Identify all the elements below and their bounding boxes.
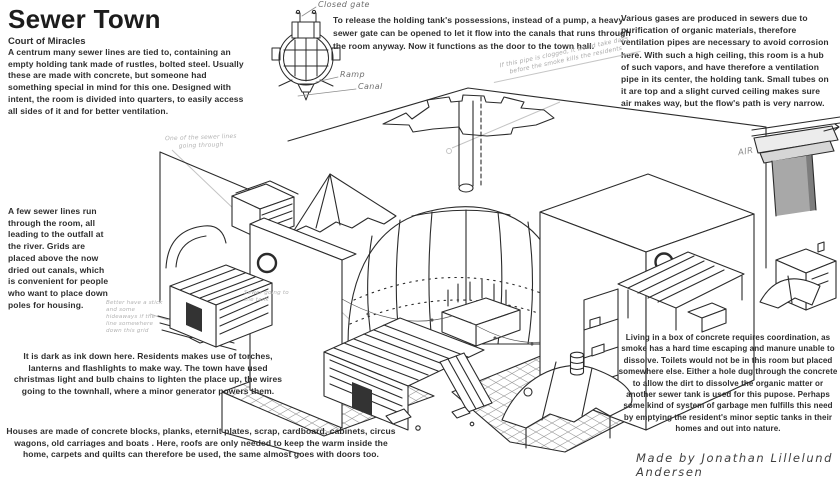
closed-gate-label: Closed gate (318, 0, 370, 9)
page-title: Sewer Town (8, 4, 161, 35)
gases-paragraph: Various gases are produced in sewers due… (621, 12, 833, 110)
sewer-lines-paragraph: A few sewer lines run through the room, … (8, 206, 114, 311)
concept-art-page: Sewer Town Court of Miracles A centrum m… (0, 0, 840, 479)
pillar-drawing (752, 117, 840, 216)
canal-label: Canal (358, 82, 383, 91)
sewer-line-note: One of the sewer lines going through (158, 133, 244, 151)
grid-note: Better have a stick and some hideaways i… (106, 300, 168, 335)
houses-paragraph: Houses are made of concrete blocks, plan… (2, 426, 400, 461)
ramp-label: Ramp (340, 70, 365, 79)
artist-signature: Made by Jonathan Lillelund Andersen (636, 451, 840, 479)
dark-paragraph: It is dark as ink down here. Residents m… (12, 351, 284, 398)
tank-note: Sewer going to the tank (244, 290, 290, 304)
intro-paragraph: A centrum many sewer lines are tied to, … (8, 47, 250, 117)
living-paragraph: Living in a box of concrete requires coo… (618, 332, 838, 435)
page-subtitle: Court of Miracles (8, 36, 161, 47)
